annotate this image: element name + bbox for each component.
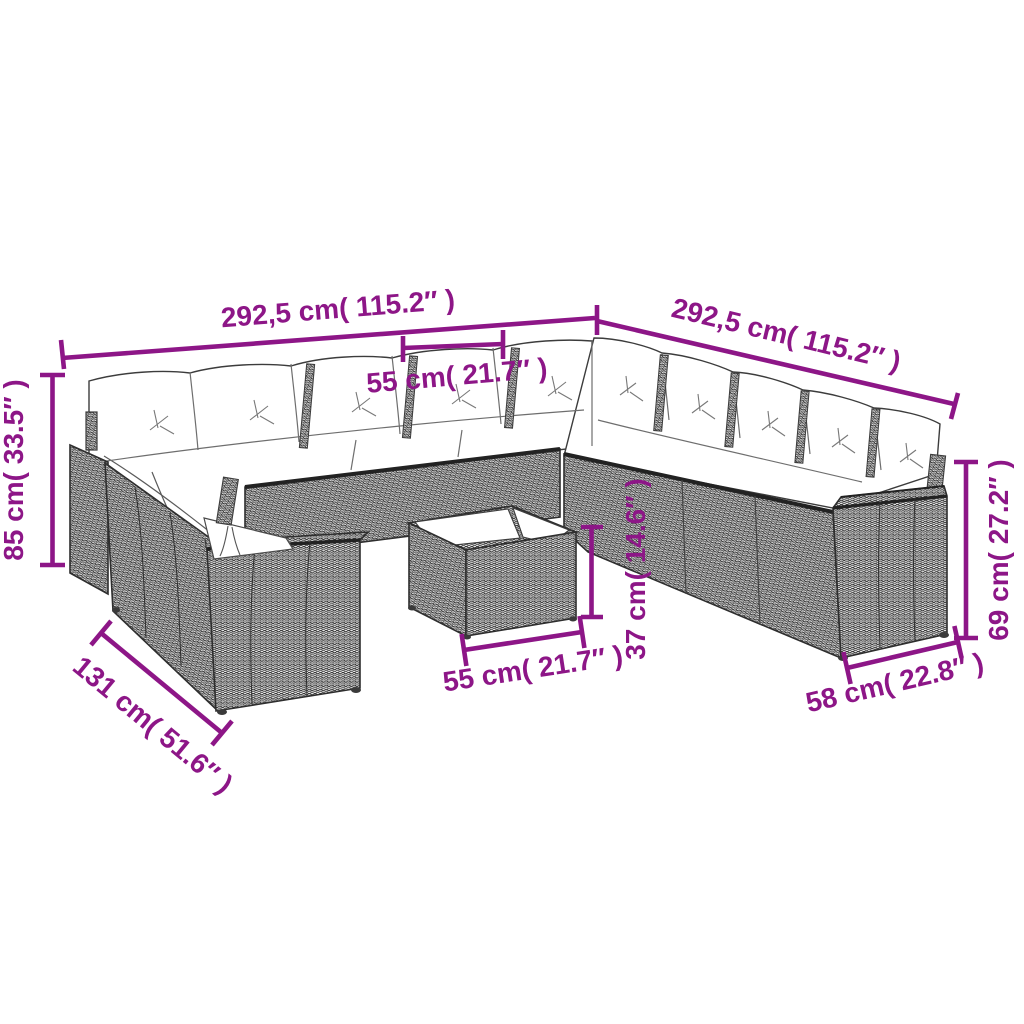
svg-text:292,5 cm( 115.2″ ): 292,5 cm( 115.2″ ) xyxy=(220,284,456,334)
svg-text:85 cm( 33.5″ ): 85 cm( 33.5″ ) xyxy=(0,379,29,561)
svg-text:37 cm( 14.6″ ): 37 cm( 14.6″ ) xyxy=(620,478,651,660)
svg-text:69 cm( 27.2″ ): 69 cm( 27.2″ ) xyxy=(983,459,1014,641)
